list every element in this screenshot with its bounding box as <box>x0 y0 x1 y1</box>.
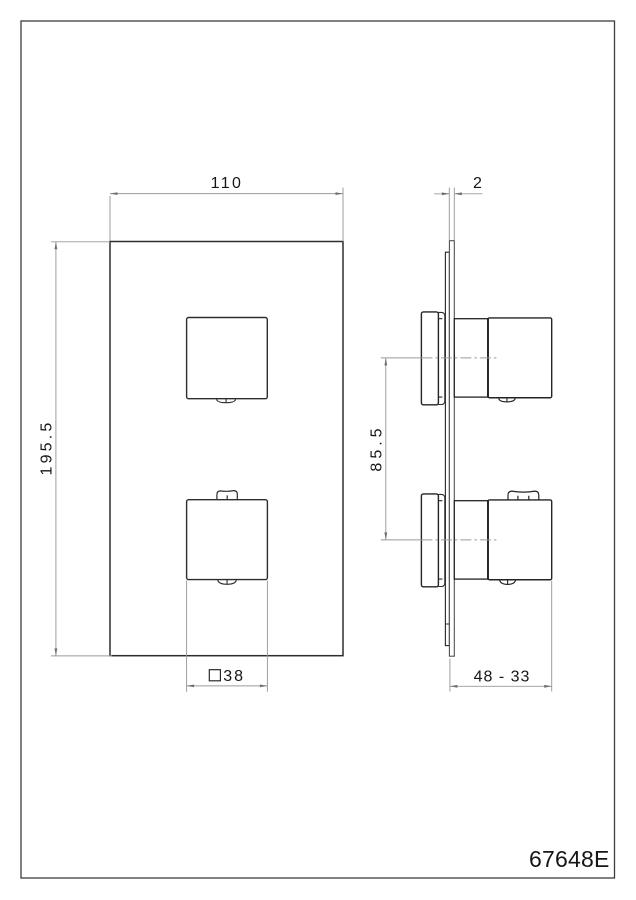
svg-text:48 - 33: 48 - 33 <box>474 669 531 686</box>
svg-text:38: 38 <box>223 668 245 685</box>
svg-text:2: 2 <box>473 175 482 192</box>
svg-text:67648E: 67648E <box>529 846 610 872</box>
svg-text:195.5: 195.5 <box>38 419 55 475</box>
svg-text:85.5: 85.5 <box>369 424 386 471</box>
svg-text:110: 110 <box>211 175 244 192</box>
